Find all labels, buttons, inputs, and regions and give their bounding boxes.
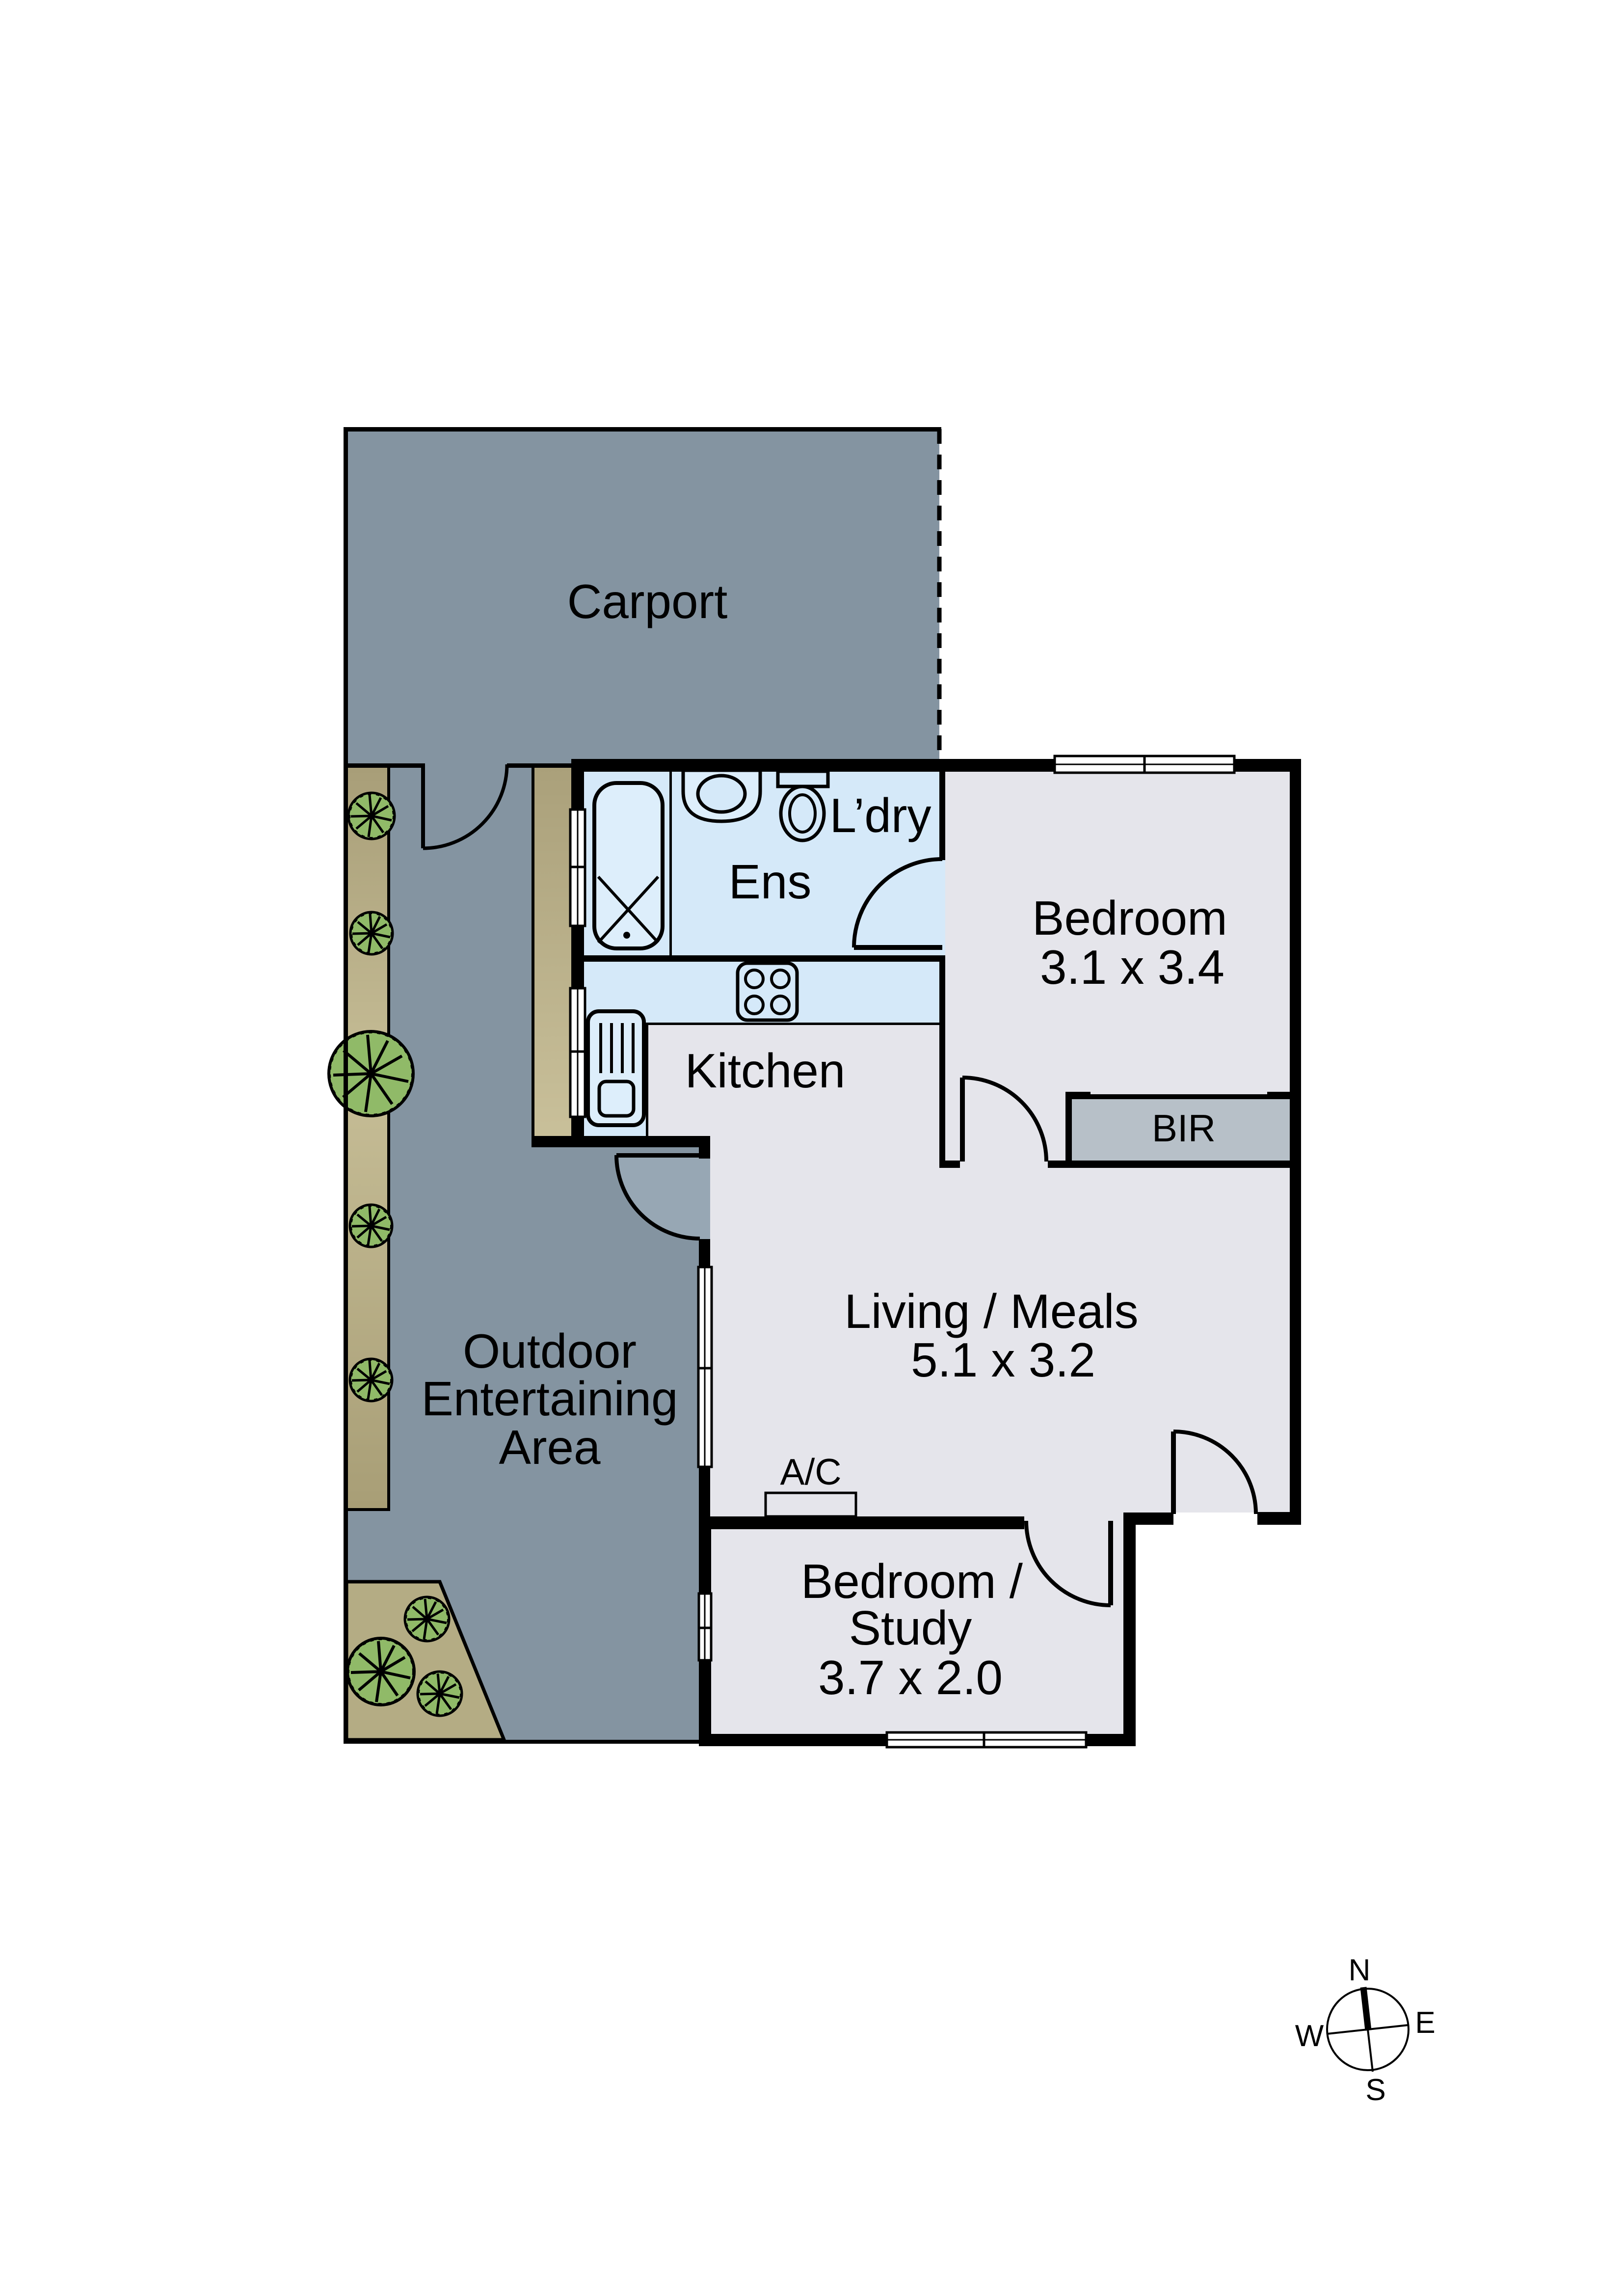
- svg-text:Bedroom /: Bedroom /: [801, 1554, 1023, 1608]
- svg-text:A/C: A/C: [780, 1451, 841, 1492]
- svg-text:N: N: [1349, 1953, 1371, 1987]
- svg-text:Outdoor: Outdoor: [463, 1324, 637, 1378]
- svg-text:Ens: Ens: [729, 855, 812, 909]
- svg-text:L’dry: L’dry: [829, 788, 931, 842]
- svg-text:Kitchen: Kitchen: [685, 1044, 846, 1098]
- svg-text:Carport: Carport: [567, 574, 728, 628]
- svg-text:5.1 x 3.2: 5.1 x 3.2: [911, 1333, 1095, 1387]
- svg-text:Entertaining: Entertaining: [421, 1372, 678, 1426]
- svg-text:3.7 x 2.0: 3.7 x 2.0: [818, 1650, 1003, 1704]
- svg-text:S: S: [1365, 2073, 1385, 2107]
- svg-text:Study: Study: [849, 1601, 972, 1655]
- svg-text:BIR: BIR: [1152, 1107, 1216, 1150]
- svg-text:E: E: [1415, 2006, 1435, 2040]
- svg-text:3.1 x 3.4: 3.1 x 3.4: [1040, 940, 1224, 994]
- svg-text:Bedroom: Bedroom: [1032, 891, 1227, 945]
- svg-text:Area: Area: [499, 1420, 601, 1474]
- svg-text:W: W: [1295, 2019, 1324, 2053]
- svg-text:Living / Meals: Living / Meals: [844, 1284, 1138, 1338]
